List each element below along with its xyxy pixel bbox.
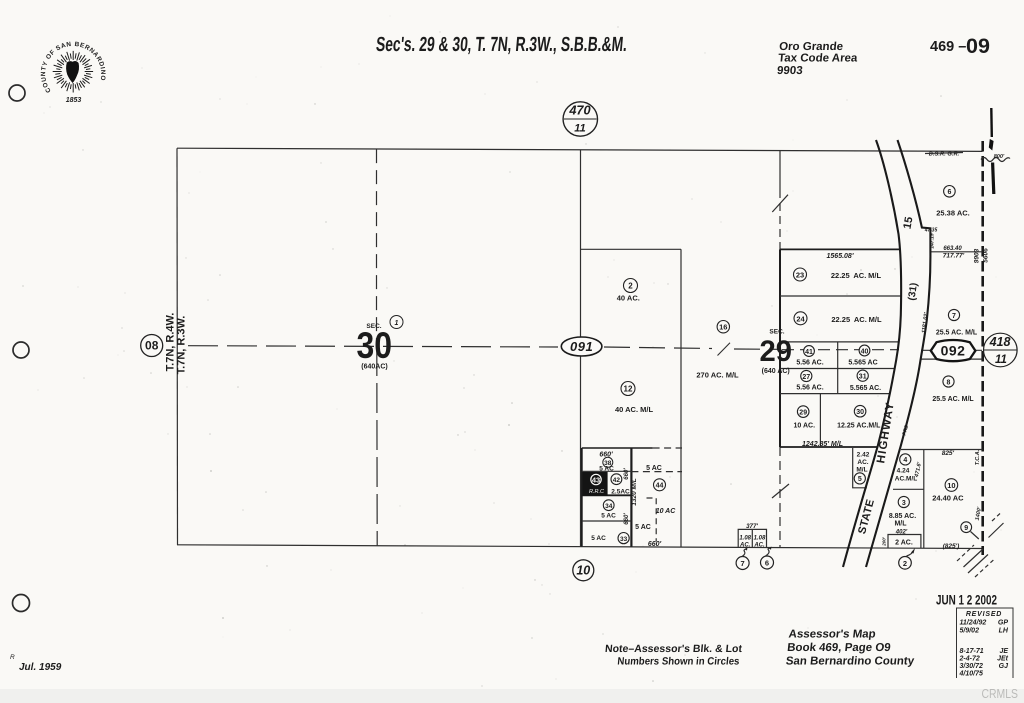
svg-text:2.42: 2.42 <box>857 452 870 459</box>
svg-text:R: R <box>10 654 15 661</box>
svg-text:4/10/75: 4/10/75 <box>959 671 983 678</box>
svg-text:9903: 9903 <box>777 65 804 77</box>
svg-text:Jul. 1959: Jul. 1959 <box>19 662 62 673</box>
svg-text:660': 660' <box>624 513 630 525</box>
svg-text:3/30/72: 3/30/72 <box>960 663 983 670</box>
svg-text:1320 M/L: 1320 M/L <box>631 478 638 505</box>
svg-text:1242.85' M/L: 1242.85' M/L <box>802 441 843 448</box>
svg-text:Numbers Shown in Circles: Numbers Shown in Circles <box>617 656 740 668</box>
svg-text:4: 4 <box>903 457 907 464</box>
svg-text:663.40: 663.40 <box>943 246 962 252</box>
svg-text:7: 7 <box>741 559 745 568</box>
svg-text:200': 200' <box>882 536 887 547</box>
svg-text:25.5 AC. M/L: 25.5 AC. M/L <box>936 329 978 336</box>
svg-text:092: 092 <box>941 343 966 359</box>
svg-text:Sec's. 29 & 30, T. 7N, R.3W.,: Sec's. 29 & 30, T. 7N, R.3W., S.B.B.&M. <box>375 33 628 56</box>
svg-text:22.25 AC. M/L: 22.25 AC. M/L <box>831 315 882 324</box>
svg-text:8: 8 <box>947 379 951 386</box>
svg-text:29: 29 <box>799 410 807 417</box>
svg-text:2 AC.: 2 AC. <box>895 540 913 547</box>
svg-text:2.5AC: 2.5AC <box>611 489 630 496</box>
svg-text:30: 30 <box>357 325 393 366</box>
svg-text:22.25 AC. M/L: 22.25 AC. M/L <box>831 271 882 280</box>
svg-text:10 AC.: 10 AC. <box>794 423 816 430</box>
svg-text:M/L: M/L <box>894 521 907 528</box>
svg-text:Note–Assessor's Blk. & Lot: Note–Assessor's Blk. & Lot <box>605 643 744 655</box>
svg-text:4.24: 4.24 <box>897 468 910 475</box>
svg-text:AC.: AC. <box>753 543 765 549</box>
svg-text:402': 402' <box>895 530 908 536</box>
svg-text:T.7N, R.3W.: T.7N, R.3W. <box>176 316 188 375</box>
svg-text:1.08: 1.08 <box>754 536 766 542</box>
svg-text:8-17-71: 8-17-71 <box>960 648 984 655</box>
svg-text:(825'): (825') <box>943 543 960 550</box>
svg-text:469 –: 469 – <box>930 39 966 55</box>
svg-text:12: 12 <box>624 385 633 394</box>
svg-text:091: 091 <box>570 339 593 354</box>
svg-text:270 AC. M/L: 270 AC. M/L <box>696 370 739 379</box>
svg-text:6: 6 <box>947 189 951 196</box>
svg-text:San Bernardino County: San Bernardino County <box>785 656 915 668</box>
svg-text:418: 418 <box>989 335 1011 349</box>
svg-text:M/L: M/L <box>856 467 867 474</box>
svg-text:660': 660' <box>624 468 630 480</box>
svg-text:660': 660' <box>648 541 662 548</box>
svg-text:5 AC: 5 AC <box>601 513 616 520</box>
svg-text:10 AC: 10 AC <box>656 508 677 515</box>
svg-text:377': 377' <box>746 523 758 530</box>
svg-text:3: 3 <box>902 500 906 507</box>
svg-text:40 AC.: 40 AC. <box>617 294 640 303</box>
svg-text:09: 09 <box>966 34 990 58</box>
svg-text:25.5 AC. M/L: 25.5 AC. M/L <box>932 396 974 403</box>
svg-text:31: 31 <box>859 374 867 381</box>
svg-text:Book 469, Page O9: Book 469, Page O9 <box>787 642 892 654</box>
svg-text:41: 41 <box>805 349 813 356</box>
svg-text:Tax Code Area: Tax Code Area <box>778 53 859 65</box>
svg-text:24.40 AC: 24.40 AC <box>932 494 964 503</box>
svg-text:470: 470 <box>568 103 590 118</box>
svg-text:16: 16 <box>719 323 727 332</box>
svg-text:24: 24 <box>796 314 805 323</box>
svg-text:5: 5 <box>858 476 862 483</box>
svg-text:(640AC): (640AC) <box>361 364 387 371</box>
svg-text:AC.: AC. <box>857 459 868 466</box>
svg-text:40: 40 <box>861 348 869 355</box>
svg-text:T.C.A.: T.C.A. <box>975 449 981 465</box>
svg-text:Assessor's Map: Assessor's Map <box>788 629 876 641</box>
svg-text:40 AC. M/L: 40 AC. M/L <box>615 405 653 414</box>
svg-text:5.565 AC: 5.565 AC <box>848 360 877 367</box>
svg-text:15: 15 <box>902 216 916 230</box>
svg-text:5/9/02: 5/9/02 <box>960 628 980 635</box>
svg-text:1853: 1853 <box>66 97 82 104</box>
svg-text:08: 08 <box>145 339 159 353</box>
svg-text:43: 43 <box>592 475 600 484</box>
svg-text:29: 29 <box>760 335 793 368</box>
svg-text:8.85 AC.: 8.85 AC. <box>889 513 916 520</box>
svg-text:2-4-72: 2-4-72 <box>959 656 980 663</box>
svg-text:825': 825' <box>942 450 955 457</box>
svg-text:Oro Grande: Oro Grande <box>779 41 845 53</box>
svg-text:JE: JE <box>999 648 1008 655</box>
svg-text:33: 33 <box>620 536 628 543</box>
svg-text:11/24/92: 11/24/92 <box>960 620 987 627</box>
svg-text:7: 7 <box>952 313 956 320</box>
svg-text:CRMLS: CRMLS <box>982 687 1019 701</box>
svg-text:5 AC: 5 AC <box>599 466 614 473</box>
svg-text:11: 11 <box>995 354 1007 366</box>
svg-text:GP: GP <box>998 620 1008 627</box>
svg-text:1: 1 <box>395 320 399 327</box>
svg-text:47.35: 47.35 <box>924 228 938 234</box>
svg-text:5.56 AC.: 5.56 AC. <box>796 385 823 392</box>
svg-text:JUN 1 2 2002: JUN 1 2 2002 <box>936 593 997 608</box>
svg-text:1565.08': 1565.08' <box>827 253 854 260</box>
svg-text:2: 2 <box>903 559 907 568</box>
svg-text:LH: LH <box>999 628 1009 635</box>
svg-text:34: 34 <box>605 503 613 510</box>
svg-text:800': 800' <box>994 154 1005 160</box>
svg-text:11: 11 <box>574 123 585 135</box>
svg-text:44: 44 <box>656 483 664 490</box>
svg-text:10: 10 <box>947 481 955 490</box>
svg-text:R.R.C: R.R.C <box>589 489 604 495</box>
svg-text:30: 30 <box>856 409 864 416</box>
svg-text:717.77': 717.77' <box>943 252 965 259</box>
svg-text:147.19: 147.19 <box>930 233 936 249</box>
svg-text:5606: 5606 <box>983 248 990 263</box>
svg-text:6: 6 <box>765 559 769 568</box>
svg-text:5.56 AC.: 5.56 AC. <box>796 360 823 367</box>
svg-text:25.38 AC.: 25.38 AC. <box>936 209 970 218</box>
svg-text:42: 42 <box>613 477 621 484</box>
svg-text:1.08: 1.08 <box>739 536 751 542</box>
svg-text:(640 AC): (640 AC) <box>762 368 790 375</box>
svg-text:27: 27 <box>802 374 810 381</box>
svg-text:10: 10 <box>576 564 590 578</box>
svg-text:23: 23 <box>796 271 804 280</box>
svg-text:JEt: JEt <box>997 656 1009 663</box>
svg-text:5 AC: 5 AC <box>646 465 662 472</box>
svg-text:5.565 AC.: 5.565 AC. <box>850 385 881 392</box>
svg-text:9903: 9903 <box>973 248 980 263</box>
svg-text:AC.: AC. <box>739 543 751 549</box>
svg-text:2: 2 <box>628 282 633 291</box>
svg-text:GJ: GJ <box>999 663 1009 670</box>
svg-text:9: 9 <box>964 525 968 532</box>
svg-text:12.25 AC.M/L: 12.25 AC.M/L <box>837 423 881 430</box>
svg-text:REVISED: REVISED <box>966 611 1002 618</box>
svg-text:5 AC: 5 AC <box>591 535 606 542</box>
svg-text:5 AC: 5 AC <box>635 524 651 531</box>
